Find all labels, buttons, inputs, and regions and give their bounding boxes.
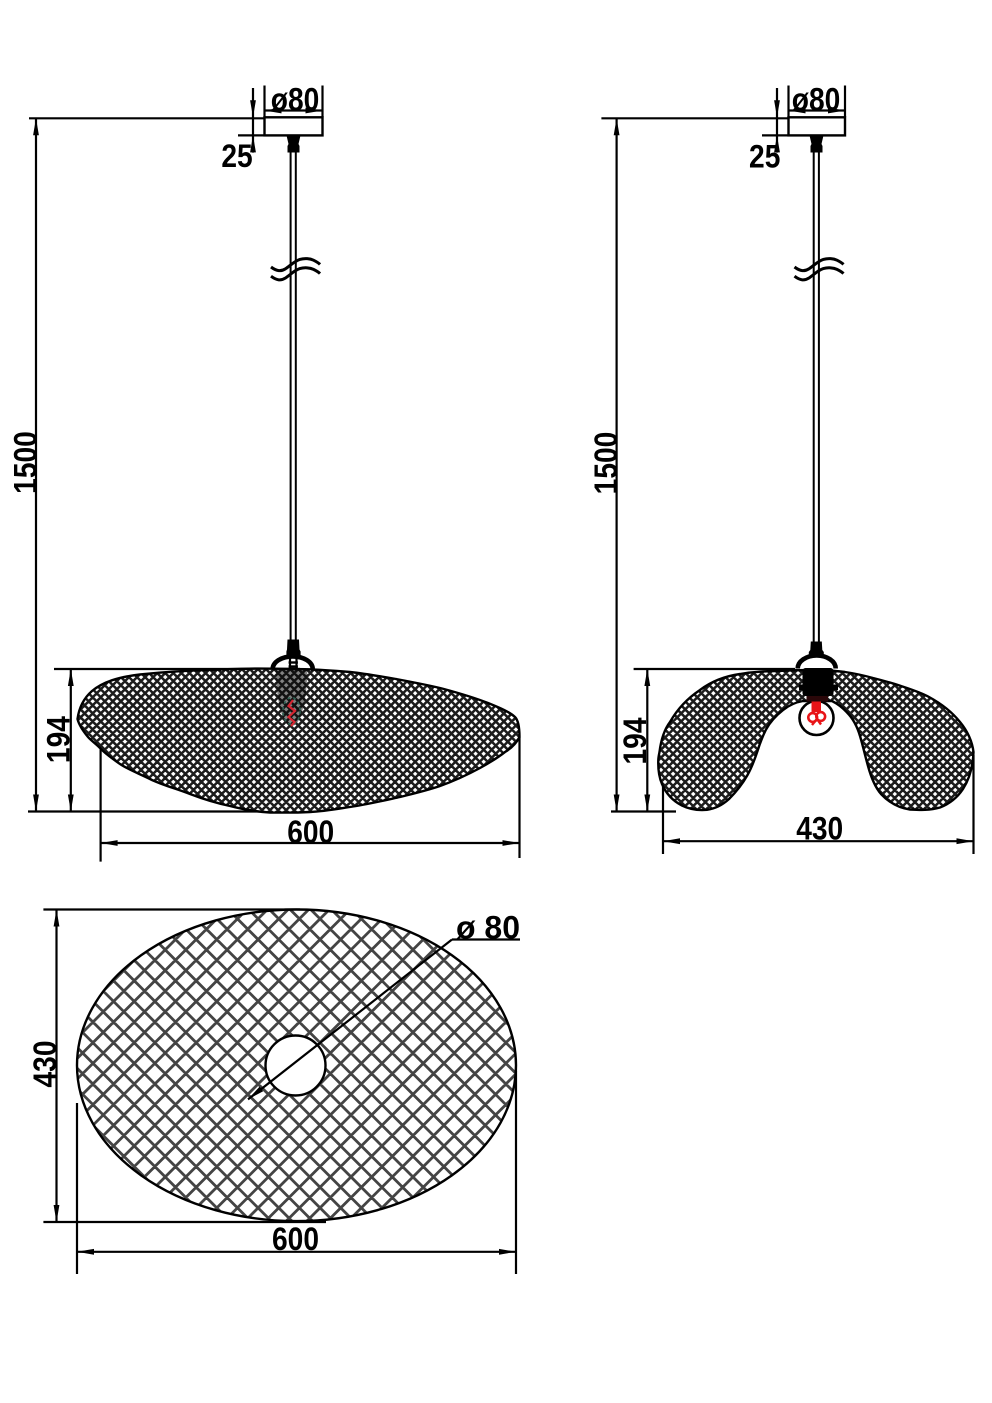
svg-text:ø80: ø80 (792, 83, 841, 118)
svg-text:ø 80: ø 80 (456, 910, 520, 946)
svg-text:1500: 1500 (9, 431, 44, 494)
svg-text:25: 25 (749, 140, 780, 175)
svg-text:194: 194 (42, 716, 77, 763)
svg-text:25: 25 (221, 139, 252, 174)
svg-text:ø80: ø80 (271, 83, 320, 118)
svg-text:600: 600 (272, 1222, 319, 1257)
svg-text:1500: 1500 (589, 432, 624, 495)
svg-text:430: 430 (796, 812, 843, 847)
svg-text:600: 600 (287, 815, 334, 850)
svg-text:430: 430 (28, 1041, 63, 1088)
svg-text:194: 194 (618, 717, 653, 764)
